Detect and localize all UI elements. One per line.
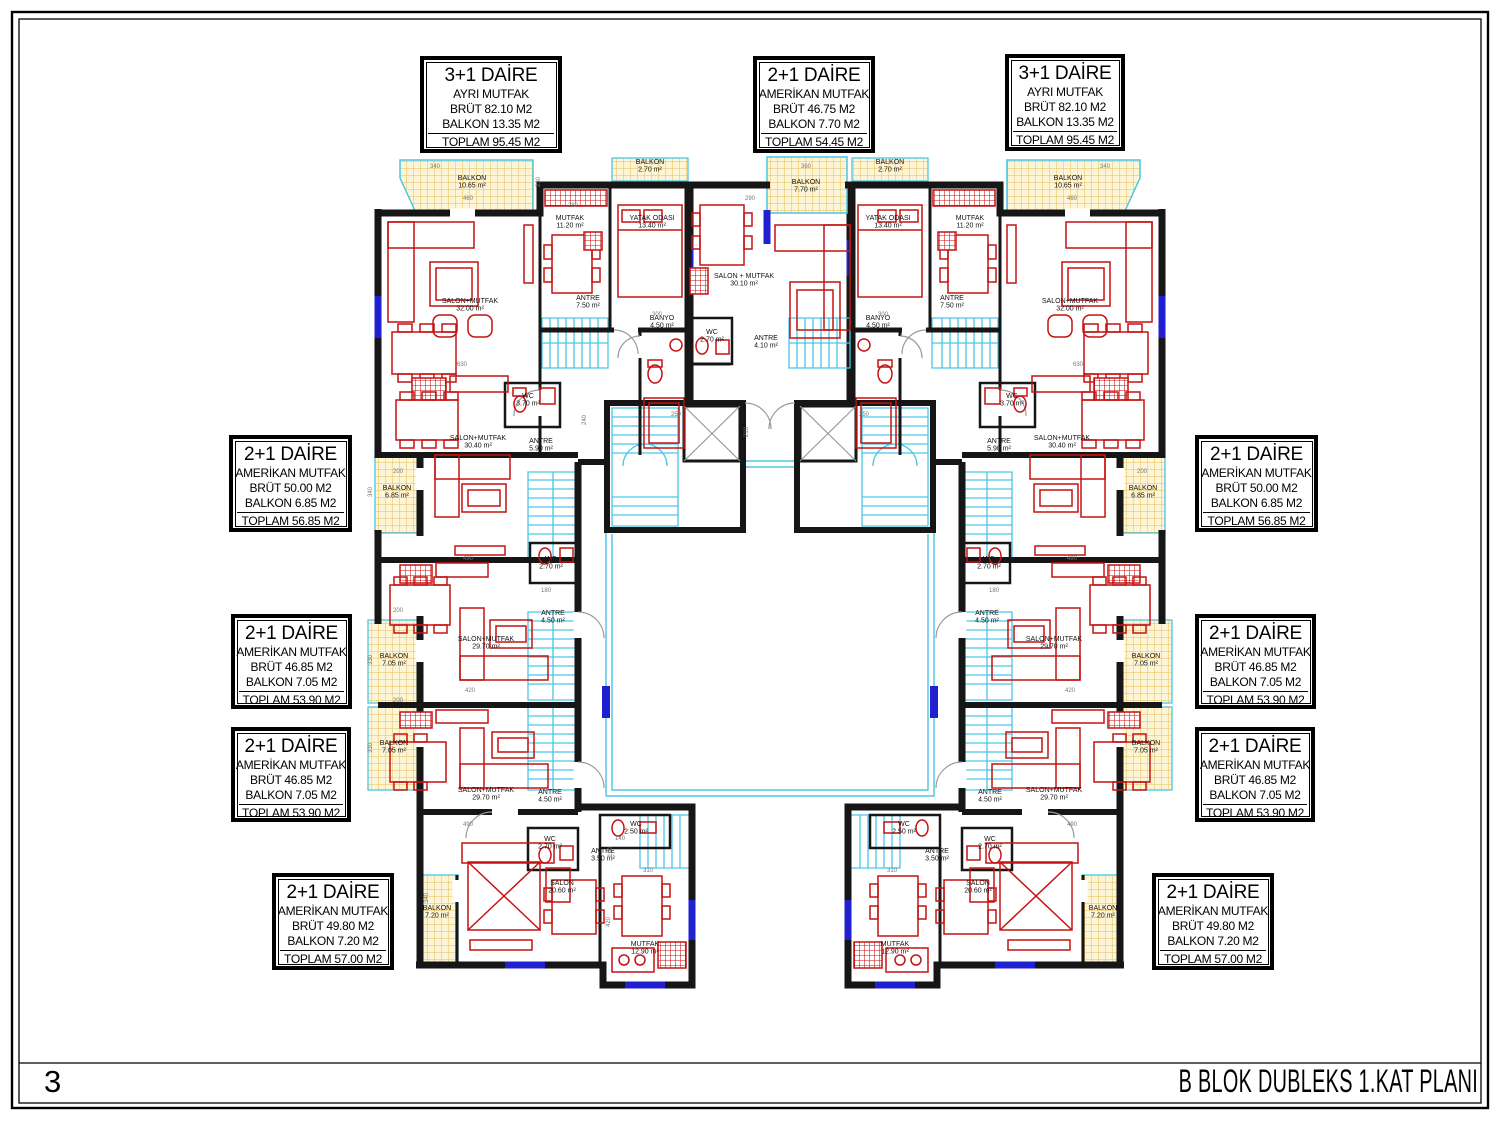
svg-text:340: 340 <box>368 486 374 497</box>
svg-text:BALKON10.65 m²: BALKON10.65 m² <box>458 175 487 190</box>
total-area: TOPLAM 95.45 M2 <box>1009 132 1121 148</box>
total-area: TOPLAM 54.45 M2 <box>757 134 871 150</box>
svg-text:SALON + MUTFAK30.10 m²: SALON + MUTFAK30.10 m² <box>714 273 774 288</box>
svg-text:BALKON2.70 m²: BALKON2.70 m² <box>876 159 904 174</box>
svg-text:SALON+MUTFAK29.70 m²: SALON+MUTFAK29.70 m² <box>1026 787 1083 802</box>
svg-text:SALON+MUTFAK29.70 m²: SALON+MUTFAK29.70 m² <box>458 787 515 802</box>
kitchen-type: AMERİKAN MUTFAK <box>235 758 347 773</box>
apartment-info-box-top-left: 3+1 DAİRE AYRI MUTFAK BRÜT 82.10 M2 BALK… <box>420 56 562 153</box>
svg-text:SALON20.60 m²: SALON20.60 m² <box>548 880 576 895</box>
total-area: TOPLAM 95.45 M2 <box>424 134 558 150</box>
svg-text:340: 340 <box>430 164 441 170</box>
gross-area: BRÜT 49.80 M2 <box>276 919 390 934</box>
apartment-type: 2+1 DAİRE <box>1156 882 1270 904</box>
svg-text:340: 340 <box>1100 164 1111 170</box>
total-area: TOPLAM 53.90 M2 <box>1199 692 1312 708</box>
total-area: TOPLAM 53.90 M2 <box>1199 805 1311 821</box>
svg-text:200: 200 <box>393 469 404 475</box>
svg-text:BALKON6.85 m²: BALKON6.85 m² <box>1129 485 1157 500</box>
svg-text:200: 200 <box>393 608 404 614</box>
apartment-info-box-left-3: 2+1 DAİRE AMERİKAN MUTFAK BRÜT 46.85 M2 … <box>231 727 351 822</box>
balcony-area: BALKON 7.05 M2 <box>235 675 348 690</box>
svg-text:420: 420 <box>606 916 612 927</box>
svg-text:310: 310 <box>643 868 654 874</box>
apartment-type: 2+1 DAİRE <box>1199 623 1312 645</box>
kitchen-type: AMERİKAN MUTFAK <box>1156 904 1270 919</box>
svg-text:BALKON10.65 m²: BALKON10.65 m² <box>1054 175 1083 190</box>
apartment-info-box-top-right: 3+1 DAİRE AYRI MUTFAK BRÜT 82.10 M2 BALK… <box>1005 54 1125 151</box>
kitchen-type: AMERİKAN MUTFAK <box>757 87 871 102</box>
svg-text:BALKON7.05 m²: BALKON7.05 m² <box>380 740 408 755</box>
apartment-type: 2+1 DAİRE <box>233 444 348 466</box>
svg-text:490: 490 <box>1067 822 1078 828</box>
svg-text:110: 110 <box>608 847 614 857</box>
svg-text:200: 200 <box>393 698 404 704</box>
svg-text:140: 140 <box>615 836 626 842</box>
gross-area: BRÜT 82.10 M2 <box>424 102 558 117</box>
balcony-area: BALKON 6.85 M2 <box>1199 496 1314 511</box>
svg-text:ANTRE4.50 m²: ANTRE4.50 m² <box>541 610 565 625</box>
svg-text:ANTRE4.50 m²: ANTRE4.50 m² <box>538 789 562 804</box>
apartment-type: 2+1 DAİRE <box>235 623 348 645</box>
total-area: TOPLAM 57.00 M2 <box>1156 951 1270 967</box>
apartment-info-box-right-3: 2+1 DAİRE AMERİKAN MUTFAK BRÜT 46.85 M2 … <box>1195 727 1315 822</box>
svg-text:460: 460 <box>463 196 474 202</box>
svg-text:240: 240 <box>582 414 588 425</box>
svg-text:180: 180 <box>989 588 1000 594</box>
balcony-area: BALKON 7.05 M2 <box>235 788 347 803</box>
apartment-info-box-bottom-right: 2+1 DAİRE AMERİKAN MUTFAK BRÜT 49.80 M2 … <box>1152 873 1274 970</box>
svg-text:420: 420 <box>1065 688 1076 694</box>
svg-text:300: 300 <box>878 312 889 318</box>
apartment-type: 2+1 DAİRE <box>276 882 390 904</box>
apartment-type: 2+1 DAİRE <box>1199 444 1314 466</box>
svg-text:630: 630 <box>1073 362 1084 368</box>
svg-text:BALKON6.85 m²: BALKON6.85 m² <box>383 485 411 500</box>
apartment-type: 2+1 DAİRE <box>1199 736 1311 758</box>
sheet-title: B BLOK DUBLEKS 1.KAT PLANI <box>1178 1063 1478 1100</box>
svg-text:290: 290 <box>745 196 756 202</box>
svg-text:250: 250 <box>671 412 682 418</box>
apartment-type: 3+1 DAİRE <box>1009 63 1121 85</box>
apartment-info-box-right-1: 2+1 DAİRE AMERİKAN MUTFAK BRÜT 50.00 M2 … <box>1195 435 1318 532</box>
kitchen-type: AMERİKAN MUTFAK <box>1199 645 1312 660</box>
svg-text:WC2.50 m²: WC2.50 m² <box>624 821 648 836</box>
svg-text:330: 330 <box>368 742 374 753</box>
svg-text:WC2.70 m²: WC2.70 m² <box>538 836 562 851</box>
kitchen-type: AMERİKAN MUTFAK <box>1199 758 1311 773</box>
sheet-number: 3 <box>44 1064 61 1100</box>
svg-text:MUTFAK12.90 m²: MUTFAK12.90 m² <box>631 941 660 956</box>
svg-text:BALKON7.05 m²: BALKON7.05 m² <box>380 653 408 668</box>
balcony-area: BALKON 13.35 M2 <box>424 117 558 132</box>
svg-text:ANTRE4.50 m²: ANTRE4.50 m² <box>975 610 999 625</box>
svg-text:360: 360 <box>801 164 812 170</box>
svg-text:180: 180 <box>541 588 552 594</box>
total-area: TOPLAM 53.90 M2 <box>235 805 347 821</box>
window-marker <box>764 210 771 244</box>
svg-text:ANTRE7.50 m²: ANTRE7.50 m² <box>940 295 964 310</box>
svg-text:BALKON2.70 m²: BALKON2.70 m² <box>636 159 664 174</box>
apartment-info-box-left-2: 2+1 DAİRE AMERİKAN MUTFAK BRÜT 46.85 M2 … <box>231 614 352 709</box>
total-area: TOPLAM 56.85 M2 <box>233 513 348 529</box>
apartment-type: 3+1 DAİRE <box>424 65 558 87</box>
center-apartment <box>688 157 852 429</box>
total-area: TOPLAM 57.00 M2 <box>276 951 390 967</box>
kitchen-type: AYRI MUTFAK <box>1009 85 1121 100</box>
apartment-info-box-right-2: 2+1 DAİRE AMERİKAN MUTFAK BRÜT 46.85 M2 … <box>1195 614 1316 709</box>
drawing-sheet: BALKON10.65 m²BALKON2.70 m²SALON+MUTFAK3… <box>0 0 1500 1125</box>
total-area: TOPLAM 53.90 M2 <box>235 692 348 708</box>
svg-text:BALKON7.20 m²: BALKON7.20 m² <box>1089 905 1117 920</box>
gross-area: BRÜT 82.10 M2 <box>1009 100 1121 115</box>
balcony-area: BALKON 6.85 M2 <box>233 496 348 511</box>
gross-area: BRÜT 46.85 M2 <box>1199 660 1312 675</box>
kitchen-type: AMERİKAN MUTFAK <box>276 904 390 919</box>
balcony-area: BALKON 7.20 M2 <box>276 934 390 949</box>
svg-text:340: 340 <box>424 892 430 903</box>
svg-text:210: 210 <box>744 426 750 437</box>
svg-text:280: 280 <box>568 203 579 209</box>
svg-text:310: 310 <box>887 868 898 874</box>
svg-text:BALKON7.70 m²: BALKON7.70 m² <box>792 179 820 194</box>
svg-text:230: 230 <box>536 176 542 187</box>
center-stairs <box>789 318 850 368</box>
total-area: TOPLAM 56.85 M2 <box>1199 513 1314 529</box>
gross-area: BRÜT 50.00 M2 <box>233 481 348 496</box>
apartment-info-box-bottom-left: 2+1 DAİRE AMERİKAN MUTFAK BRÜT 49.80 M2 … <box>272 873 394 970</box>
gross-area: BRÜT 49.80 M2 <box>1156 919 1270 934</box>
svg-text:ANTRE4.10 m²: ANTRE4.10 m² <box>754 335 778 350</box>
apartment-type: 2+1 DAİRE <box>757 65 871 87</box>
apartment-info-box-left-1: 2+1 DAİRE AMERİKAN MUTFAK BRÜT 50.00 M2 … <box>229 435 352 532</box>
balcony-area: BALKON 7.20 M2 <box>1156 934 1270 949</box>
svg-text:ANTRE3.50 m²: ANTRE3.50 m² <box>925 848 949 863</box>
kitchen-type: AMERİKAN MUTFAK <box>235 645 348 660</box>
svg-text:200: 200 <box>1137 469 1148 475</box>
svg-text:WC2.70 m²: WC2.70 m² <box>978 836 1002 851</box>
kitchen-type: AYRI MUTFAK <box>424 87 558 102</box>
balcony-area: BALKON 13.35 M2 <box>1009 115 1121 130</box>
svg-text:250: 250 <box>859 412 870 418</box>
gross-area: BRÜT 46.85 M2 <box>235 773 347 788</box>
balcony-area: BALKON 7.05 M2 <box>1199 675 1312 690</box>
balcony-area: BALKON 7.70 M2 <box>757 117 871 132</box>
gross-area: BRÜT 46.85 M2 <box>1199 773 1311 788</box>
svg-text:630: 630 <box>457 362 468 368</box>
svg-text:ANTRE5.90 m²: ANTRE5.90 m² <box>529 438 553 453</box>
svg-text:300: 300 <box>652 312 663 318</box>
svg-text:330: 330 <box>368 654 374 665</box>
entry-door-arcs <box>745 403 795 429</box>
svg-text:490: 490 <box>463 556 474 562</box>
svg-text:WC2.70 m²: WC2.70 m² <box>700 329 724 344</box>
svg-text:WC2.50 m²: WC2.50 m² <box>892 821 916 836</box>
svg-text:BALKON7.05 m²: BALKON7.05 m² <box>1132 653 1160 668</box>
svg-text:ANTRE5.90 m²: ANTRE5.90 m² <box>987 438 1011 453</box>
svg-text:SALON20.60 m²: SALON20.60 m² <box>964 880 992 895</box>
svg-text:490: 490 <box>1067 556 1078 562</box>
gross-area: BRÜT 46.75 M2 <box>757 102 871 117</box>
svg-text:490: 490 <box>463 822 474 828</box>
gross-area: BRÜT 50.00 M2 <box>1199 481 1314 496</box>
svg-text:ANTRE4.50 m²: ANTRE4.50 m² <box>978 789 1002 804</box>
svg-text:MUTFAK11.20 m²: MUTFAK11.20 m² <box>956 215 985 230</box>
balcony-area: BALKON 7.05 M2 <box>1199 788 1311 803</box>
svg-text:ANTRE7.50 m²: ANTRE7.50 m² <box>576 295 600 310</box>
svg-text:420: 420 <box>465 688 476 694</box>
svg-text:MUTFAK11.20 m²: MUTFAK11.20 m² <box>556 215 585 230</box>
window-marker <box>602 686 610 718</box>
apartment-type: 2+1 DAİRE <box>235 736 347 758</box>
kitchen-type: AMERİKAN MUTFAK <box>1199 466 1314 481</box>
floor-plan: BALKON10.65 m²BALKON2.70 m²SALON+MUTFAK3… <box>0 0 1500 1125</box>
furniture <box>388 190 686 972</box>
gross-area: BRÜT 46.85 M2 <box>235 660 348 675</box>
svg-text:BALKON7.20 m²: BALKON7.20 m² <box>423 905 451 920</box>
svg-text:460: 460 <box>1067 196 1078 202</box>
elevator <box>684 406 740 461</box>
kitchen-type: AMERİKAN MUTFAK <box>233 466 348 481</box>
svg-text:BALKON7.05 m²: BALKON7.05 m² <box>1132 740 1160 755</box>
svg-text:MUTFAK12.90 m²: MUTFAK12.90 m² <box>881 941 910 956</box>
apartment-info-box-top-center: 2+1 DAİRE AMERİKAN MUTFAK BRÜT 46.75 M2 … <box>753 56 875 153</box>
